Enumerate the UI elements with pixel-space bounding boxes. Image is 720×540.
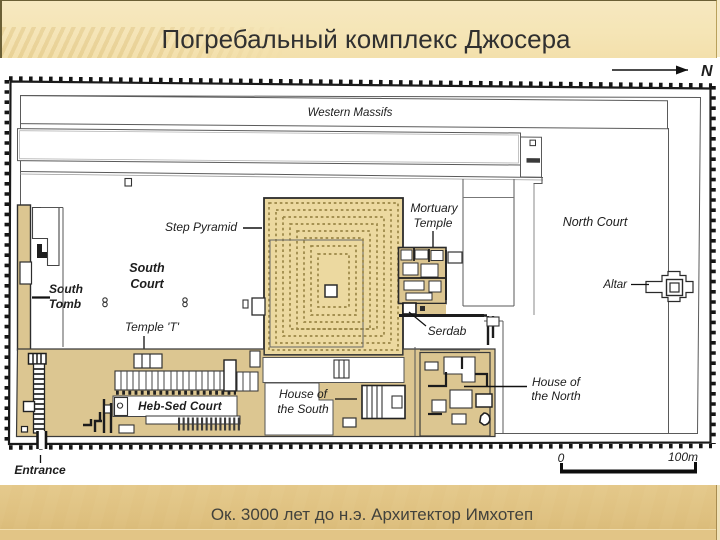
svg-text:House of: House of bbox=[279, 387, 329, 401]
svg-text:Heb-Sed Court: Heb-Sed Court bbox=[138, 400, 223, 413]
svg-text:Serdab: Serdab bbox=[428, 324, 467, 338]
svg-text:South: South bbox=[49, 282, 83, 296]
svg-text:the North: the North bbox=[531, 389, 581, 403]
svg-text:Entrance: Entrance bbox=[14, 463, 66, 477]
svg-text:the South: the South bbox=[277, 402, 329, 416]
svg-text:0: 0 bbox=[558, 451, 565, 465]
svg-text:Mortuary: Mortuary bbox=[410, 201, 458, 215]
svg-text:South: South bbox=[129, 261, 165, 275]
svg-text:House of: House of bbox=[532, 375, 582, 389]
svg-text:Altar: Altar bbox=[602, 279, 628, 291]
svg-text:Temple: Temple bbox=[414, 216, 453, 230]
svg-text:N: N bbox=[701, 63, 713, 80]
svg-text:North Court: North Court bbox=[563, 215, 628, 229]
svg-text:Western Massifs: Western Massifs bbox=[308, 107, 393, 119]
svg-text:Tomb: Tomb bbox=[49, 297, 81, 311]
svg-text:Court: Court bbox=[130, 277, 164, 291]
svg-text:100m: 100m bbox=[668, 450, 698, 464]
svg-text:Temple 'T': Temple 'T' bbox=[125, 320, 180, 334]
svg-text:Step Pyramid: Step Pyramid bbox=[165, 220, 237, 234]
